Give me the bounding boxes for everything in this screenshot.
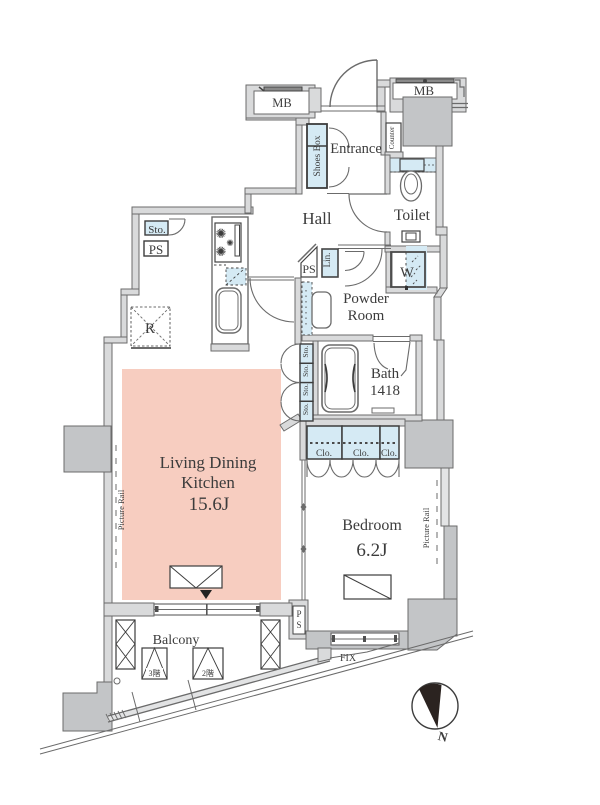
svg-text:Entrance: Entrance	[330, 141, 382, 157]
svg-text:Clo.: Clo.	[353, 449, 369, 459]
svg-text:Sto.: Sto.	[301, 403, 310, 415]
svg-text:MB: MB	[414, 83, 435, 98]
svg-text:Picture Rail: Picture Rail	[421, 507, 431, 548]
svg-text:Clo.: Clo.	[316, 449, 332, 459]
svg-text:PS: PS	[302, 262, 315, 276]
svg-text:Living Dining: Living Dining	[160, 453, 257, 472]
svg-text:R: R	[145, 321, 155, 337]
svg-text:Powder: Powder	[343, 291, 389, 307]
svg-text:Sto.: Sto.	[301, 365, 310, 377]
svg-text:S: S	[296, 620, 301, 630]
svg-text:MB: MB	[272, 96, 291, 110]
svg-text:Sto.: Sto.	[301, 346, 310, 358]
svg-text:15.6J: 15.6J	[189, 494, 230, 515]
svg-text:Lin.: Lin.	[322, 253, 332, 268]
svg-text:PS: PS	[149, 242, 163, 257]
svg-text:Picture Rail: Picture Rail	[116, 489, 126, 530]
svg-text:✺: ✺	[226, 238, 234, 248]
svg-text:Shoes Box: Shoes Box	[313, 135, 323, 176]
svg-text:2階: 2階	[202, 668, 214, 678]
svg-text:1418: 1418	[370, 383, 400, 399]
svg-text:Bedroom: Bedroom	[342, 517, 402, 534]
svg-text:Toilet: Toilet	[394, 207, 431, 224]
svg-text:3階: 3階	[149, 668, 161, 678]
svg-text:Balcony: Balcony	[153, 633, 200, 648]
svg-text:✺: ✺	[216, 226, 227, 241]
svg-text:Clo.: Clo.	[381, 449, 397, 459]
svg-text:Bath: Bath	[371, 366, 400, 382]
svg-text:Counter: Counter	[388, 126, 396, 149]
svg-text:P: P	[296, 609, 301, 619]
svg-text:6.2J: 6.2J	[356, 540, 387, 561]
svg-text:Room: Room	[348, 308, 385, 324]
svg-text:Sto.: Sto.	[148, 224, 166, 236]
svg-text:✺: ✺	[216, 244, 227, 259]
svg-text:Sto.: Sto.	[301, 384, 310, 396]
svg-text:W: W	[400, 265, 414, 281]
svg-text:Hall: Hall	[302, 209, 332, 228]
svg-text:Kitchen: Kitchen	[181, 473, 235, 492]
